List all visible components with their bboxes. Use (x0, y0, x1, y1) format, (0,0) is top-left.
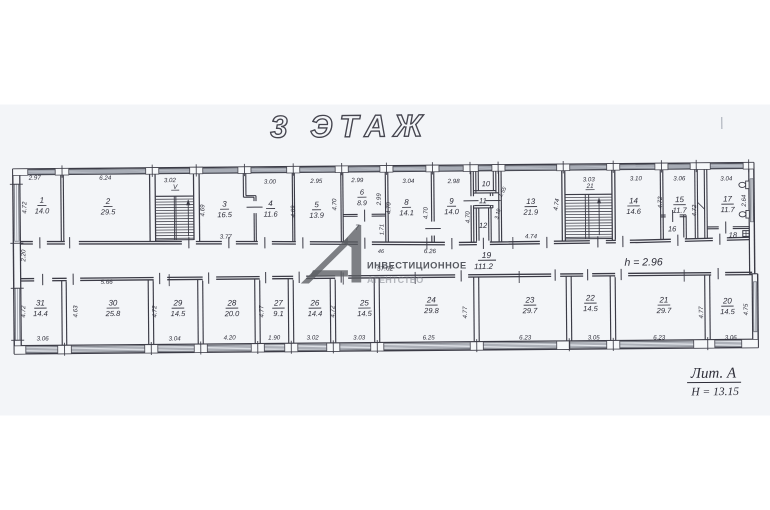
svg-text:3: 3 (222, 200, 227, 209)
svg-text:11.6: 11.6 (264, 210, 279, 219)
svg-text:2.99: 2.99 (376, 193, 383, 207)
svg-text:2.20: 2.20 (20, 249, 27, 263)
svg-text:4.72: 4.72 (151, 305, 158, 318)
svg-text:4.77: 4.77 (462, 306, 469, 319)
svg-text:3.06: 3.06 (725, 334, 738, 341)
svg-text:3.04: 3.04 (720, 175, 733, 182)
svg-text:14.0: 14.0 (35, 206, 51, 215)
svg-text:4.20: 4.20 (224, 335, 237, 342)
svg-text:2.64: 2.64 (741, 194, 748, 208)
svg-text:14.5: 14.5 (583, 304, 599, 313)
svg-text:1.71: 1.71 (380, 224, 386, 235)
svg-text:13.9: 13.9 (309, 211, 325, 220)
svg-text:2: 2 (105, 197, 111, 206)
svg-text:1: 1 (40, 196, 45, 205)
svg-text:4.70: 4.70 (331, 198, 338, 211)
svg-text:6.24: 6.24 (99, 175, 112, 182)
svg-text:15: 15 (675, 195, 685, 204)
svg-text:3.06: 3.06 (673, 175, 686, 182)
svg-text:4.69: 4.69 (290, 205, 297, 218)
svg-text:6.25: 6.25 (423, 334, 436, 341)
svg-text:АГЕНТСТВО: АГЕНТСТВО (367, 275, 423, 285)
svg-text:4.72: 4.72 (20, 305, 27, 318)
svg-text:17: 17 (723, 194, 733, 203)
svg-text:14.1: 14.1 (399, 208, 414, 217)
svg-text:21: 21 (586, 183, 594, 190)
svg-text:4.72: 4.72 (21, 201, 28, 214)
svg-text:14.4: 14.4 (33, 309, 48, 318)
svg-text:3.00: 3.00 (264, 179, 277, 186)
svg-text:h = 2.96: h = 2.96 (624, 256, 663, 268)
svg-text:3.02: 3.02 (307, 334, 320, 341)
svg-text:16.5: 16.5 (217, 210, 233, 219)
svg-text:3.77: 3.77 (220, 234, 233, 241)
svg-text:4.70: 4.70 (423, 207, 430, 220)
svg-text:29.7: 29.7 (656, 306, 673, 315)
svg-text:ИНВЕСТИЦИОННОЕ: ИНВЕСТИЦИОННОЕ (367, 260, 467, 270)
svg-text:14.5: 14.5 (720, 307, 736, 316)
svg-text:111.2: 111.2 (474, 262, 493, 271)
svg-text:9.1: 9.1 (273, 309, 284, 318)
svg-text:14.6: 14.6 (626, 207, 642, 216)
svg-text:6.23: 6.23 (519, 334, 532, 341)
svg-text:22: 22 (585, 293, 596, 302)
svg-text:14.0: 14.0 (444, 207, 460, 216)
svg-text:4.69: 4.69 (199, 204, 206, 217)
svg-text:8: 8 (404, 198, 409, 207)
svg-text:26: 26 (309, 298, 320, 307)
svg-text:2.95: 2.95 (309, 178, 323, 185)
svg-text:6.26: 6.26 (424, 248, 437, 255)
svg-text:14: 14 (629, 196, 639, 205)
svg-text:Н = 13.15: Н = 13.15 (690, 386, 739, 398)
svg-text:3.05: 3.05 (588, 334, 601, 341)
svg-text:28: 28 (226, 298, 237, 307)
svg-text:46: 46 (378, 249, 385, 255)
svg-text:4.77: 4.77 (698, 306, 705, 319)
svg-text:4.70: 4.70 (386, 202, 393, 215)
svg-text:8.9: 8.9 (357, 200, 367, 207)
svg-text:6.23: 6.23 (653, 334, 666, 341)
svg-text:20: 20 (722, 296, 733, 305)
svg-text:5: 5 (314, 200, 319, 209)
svg-text:23: 23 (524, 295, 535, 304)
svg-text:29.7: 29.7 (522, 306, 539, 315)
svg-text:11.7: 11.7 (673, 206, 688, 215)
svg-text:11.7: 11.7 (721, 205, 736, 214)
svg-text:4.72: 4.72 (329, 305, 336, 318)
svg-text:3.10: 3.10 (630, 175, 643, 182)
svg-text:29.8: 29.8 (423, 306, 440, 315)
svg-text:2.99: 2.99 (350, 177, 364, 184)
svg-text:4.63: 4.63 (72, 305, 79, 318)
svg-text:19: 19 (482, 250, 492, 260)
svg-text:4.77: 4.77 (258, 305, 265, 318)
svg-text:24: 24 (426, 295, 437, 304)
svg-text:13: 13 (526, 197, 536, 206)
svg-text:14.5: 14.5 (357, 309, 373, 318)
svg-text:3.04: 3.04 (402, 178, 415, 185)
svg-text:14.4: 14.4 (308, 309, 323, 318)
svg-text:20.0: 20.0 (224, 309, 241, 318)
svg-text:3.06: 3.06 (37, 335, 50, 342)
svg-text:1.90: 1.90 (268, 335, 281, 342)
svg-text:2.98: 2.98 (447, 178, 461, 185)
svg-text:30: 30 (108, 298, 118, 307)
svg-text:4.72: 4.72 (657, 196, 664, 209)
svg-text:4.72: 4.72 (692, 204, 698, 216)
svg-text:25.8: 25.8 (105, 309, 122, 318)
svg-text:4.75: 4.75 (744, 303, 750, 315)
svg-text:10: 10 (482, 179, 491, 188)
svg-text:31: 31 (36, 298, 45, 307)
svg-text:3.03: 3.03 (353, 334, 366, 341)
svg-text:16: 16 (668, 224, 677, 233)
svg-text:3.04: 3.04 (169, 335, 182, 342)
svg-text:29.5: 29.5 (100, 207, 117, 216)
svg-text:4.70: 4.70 (465, 211, 472, 224)
svg-text:12: 12 (479, 221, 488, 230)
svg-text:11: 11 (479, 196, 487, 205)
svg-text:21.9: 21.9 (522, 208, 539, 217)
svg-text:Лит. А: Лит. А (690, 366, 737, 382)
svg-text:14.5: 14.5 (171, 309, 187, 318)
svg-text:4.74: 4.74 (525, 233, 538, 240)
svg-text:2.97: 2.97 (28, 175, 42, 182)
svg-text:5.66: 5.66 (101, 279, 114, 286)
svg-text:27: 27 (273, 298, 284, 307)
svg-text:18: 18 (729, 230, 738, 239)
svg-text:29: 29 (172, 298, 183, 307)
svg-text:25: 25 (359, 298, 370, 307)
svg-text:9: 9 (449, 197, 454, 206)
svg-text:4: 4 (268, 199, 273, 208)
svg-text:21: 21 (658, 295, 668, 304)
svg-text:3 ЭТАЖ: 3 ЭТАЖ (270, 108, 429, 144)
